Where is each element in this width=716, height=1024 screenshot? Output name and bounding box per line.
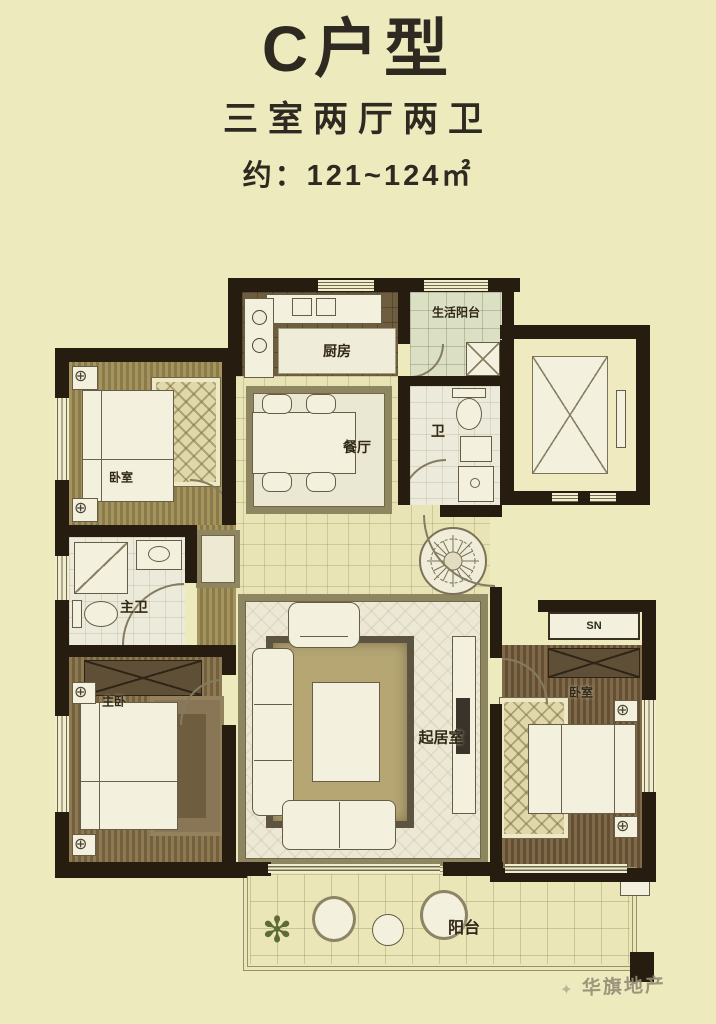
armchair-seat-line [300, 636, 348, 637]
room-label-bedroom-top-left: 卧室 [109, 469, 133, 486]
wall-segment [500, 340, 514, 505]
lamp-icon: ⊕ [74, 369, 87, 385]
plant-icon: ✻ [262, 912, 292, 948]
lamp-icon: ⊕ [74, 501, 87, 517]
elevator-rail [616, 390, 626, 448]
sliding-door [505, 864, 627, 873]
toilet [84, 601, 118, 627]
stove-burner-icon [252, 310, 267, 325]
wall-segment [222, 362, 236, 525]
corridor-rug [196, 530, 240, 588]
room-label-kitchen: 厨房 [323, 341, 351, 361]
wall-segment [398, 386, 410, 505]
room-label-bedroom-right: 卧室 [569, 684, 593, 701]
wall-segment [440, 505, 502, 517]
wall-segment [490, 587, 502, 658]
room-label-dining: 餐厅 [343, 437, 371, 457]
window [642, 700, 656, 792]
watermark-text: 华旗地产 [582, 975, 667, 999]
elevator-door [552, 493, 578, 502]
wardrobe [84, 660, 202, 696]
room-label-service-balcony: 生活阳台 [432, 304, 480, 321]
wall-segment [490, 704, 502, 870]
room-label-master-bedroom: 主卧 [102, 693, 126, 710]
room-label-balcony: 阳台 [448, 914, 480, 938]
toilet [456, 398, 482, 430]
wall-segment [222, 645, 236, 675]
wall-segment [222, 725, 236, 862]
wall-segment [502, 292, 514, 340]
elevator-car [532, 356, 608, 474]
water-heater [466, 342, 500, 376]
balcony-chair [312, 896, 356, 942]
wall-segment [185, 525, 197, 583]
cabinet-sn-label: SN [586, 620, 601, 632]
wall-segment [55, 348, 242, 362]
wall-segment [398, 292, 410, 344]
sofa-long [252, 648, 294, 816]
stove-burner-icon [252, 338, 267, 353]
sofa-seat-line [254, 760, 292, 761]
elevator-door [590, 493, 616, 502]
window [424, 280, 488, 291]
page-title: C户型 [0, 16, 716, 83]
area-text: 约：121~124㎡ [0, 152, 716, 194]
lamp-icon: ⊕ [74, 837, 87, 853]
dining-chair [306, 394, 336, 414]
wall-segment [55, 862, 247, 878]
shower [74, 542, 128, 594]
balcony-table [372, 914, 404, 946]
sliding-door [268, 864, 440, 873]
watermark-logo-icon: ✦ [560, 981, 575, 998]
wall-segment [636, 325, 650, 505]
kitchen-sink [292, 298, 312, 316]
dining-chair [306, 472, 336, 492]
room-label-bathroom: 卫 [431, 421, 445, 441]
floorplan-page: C户型 三室两厅两卫 约：121~124㎡ ⊕ ⊕ [0, 0, 716, 1024]
dining-chair [262, 472, 292, 492]
wall-segment [55, 525, 197, 537]
coffee-table [312, 682, 380, 782]
layout-subtitle: 三室两厅两卫 [0, 91, 716, 142]
lamp-icon: ⊕ [74, 685, 87, 701]
toilet-tank [452, 388, 486, 398]
window [55, 716, 69, 812]
watermark: ✦ 华旗地产 [560, 970, 667, 1001]
wall-segment [55, 645, 236, 657]
wall-segment [500, 325, 650, 339]
window [55, 556, 69, 600]
sofa-seat-line [254, 704, 292, 705]
dining-chair [262, 394, 292, 414]
room-label-master-bathroom: 主卫 [120, 597, 148, 617]
armchair [288, 602, 360, 648]
toilet-tank [72, 600, 82, 628]
window [318, 280, 374, 291]
wardrobe [548, 648, 640, 678]
dining-table [252, 412, 356, 474]
sofa-seat-line [339, 802, 340, 848]
wall-segment [398, 376, 514, 386]
sink-basin [148, 546, 170, 562]
cabinet-sn: SN [548, 612, 640, 640]
bed [80, 702, 178, 830]
lamp-icon: ⊕ [616, 703, 629, 719]
lamp-icon: ⊕ [616, 819, 629, 835]
wall-segment [538, 600, 650, 612]
window [55, 398, 69, 480]
bathroom-sink [460, 436, 492, 462]
room-label-living-room: 起居室 [418, 727, 463, 748]
washing-machine-door [470, 478, 480, 488]
bed [528, 724, 636, 814]
kitchen-sink [316, 298, 336, 316]
header: C户型 三室两厅两卫 约：121~124㎡ [0, 0, 716, 194]
